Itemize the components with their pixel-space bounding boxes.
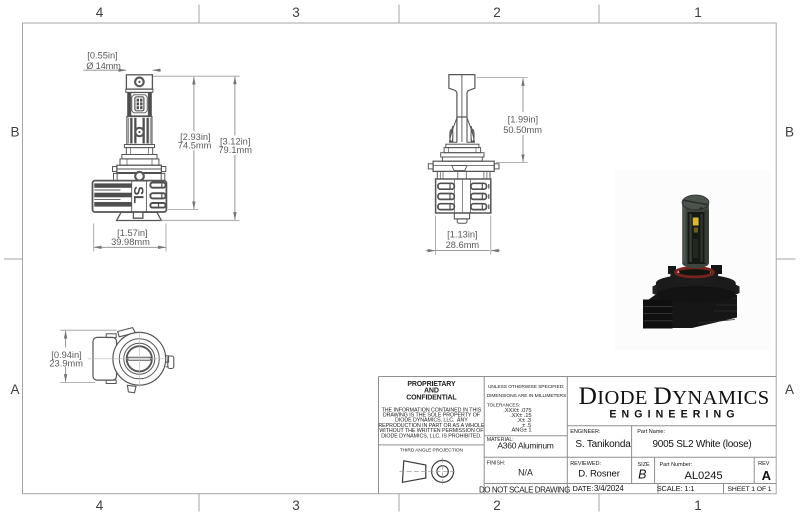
svg-text:39.98mm: 39.98mm <box>111 237 150 247</box>
svg-text:1: 1 <box>694 5 702 20</box>
svg-text:FINISH:: FINISH: <box>487 461 505 467</box>
svg-text:74.5mm: 74.5mm <box>178 141 212 151</box>
svg-text:B: B <box>638 468 646 482</box>
svg-text:50.50mm: 50.50mm <box>503 125 542 135</box>
svg-text:N/A: N/A <box>518 468 533 478</box>
svg-text:A: A <box>785 382 794 397</box>
svg-text:2: 2 <box>493 5 501 20</box>
svg-text:DIODE DYNAMICS: DIODE DYNAMICS <box>578 381 769 410</box>
svg-text:1: 1 <box>694 498 702 513</box>
svg-text:THIRD ANGLE PROJECTION: THIRD ANGLE PROJECTION <box>400 448 464 454</box>
svg-text:B: B <box>785 125 794 140</box>
svg-text:AL0245: AL0245 <box>685 470 723 482</box>
svg-text:A360 Aluminum: A360 Aluminum <box>497 441 553 451</box>
svg-text:DIMENSIONS ARE IN MILLIMETERS: DIMENSIONS ARE IN MILLIMETERS <box>487 393 567 399</box>
svg-text:SCALE: 1:1: SCALE: 1:1 <box>657 484 695 493</box>
svg-text:3: 3 <box>292 5 300 20</box>
svg-text:28.6mm: 28.6mm <box>446 240 480 250</box>
svg-text:2: 2 <box>493 498 501 513</box>
svg-text:CONFIDENTIAL: CONFIDENTIAL <box>406 394 457 401</box>
svg-text:3: 3 <box>292 498 300 513</box>
svg-text:A: A <box>10 382 19 397</box>
svg-text:Part Name:: Part Name: <box>637 429 665 435</box>
svg-text:9005 SL2 White (loose): 9005 SL2 White (loose) <box>652 439 751 450</box>
svg-text:REV: REV <box>758 461 770 467</box>
svg-text:DIODE DYNAMICS, LLC, IS PROHIB: DIODE DYNAMICS, LLC, IS PROHIBITED. <box>381 433 481 439</box>
svg-text:Part Number:: Part Number: <box>660 462 693 468</box>
svg-text:A: A <box>762 468 772 483</box>
svg-text:UNLESS OTHERWISE SPECIFIED:: UNLESS OTHERWISE SPECIFIED: <box>488 384 564 390</box>
svg-text:ENGINEER:: ENGINEER: <box>570 429 601 435</box>
svg-text:79.1mm: 79.1mm <box>218 145 252 155</box>
svg-text:Ø 14mm: Ø 14mm <box>86 61 121 71</box>
svg-text:B: B <box>10 125 19 140</box>
svg-text:[0.55in]: [0.55in] <box>87 51 118 61</box>
svg-text:SHEET 1 OF 1: SHEET 1 OF 1 <box>727 486 771 493</box>
svg-text:3/4/2024: 3/4/2024 <box>594 484 624 493</box>
svg-text:[1.99in]: [1.99in] <box>508 114 539 124</box>
svg-text:ANG± 1: ANG± 1 <box>512 428 532 434</box>
svg-text:DATE:: DATE: <box>573 484 594 493</box>
svg-text:REVIEWED:: REVIEWED: <box>570 461 601 467</box>
svg-text:4: 4 <box>96 498 104 513</box>
svg-text:D. Rosner: D. Rosner <box>578 469 620 480</box>
svg-text:SL: SL <box>131 186 146 203</box>
svg-text:DO NOT SCALE DRAWING: DO NOT SCALE DRAWING <box>479 486 570 495</box>
svg-text:S. Tanikonda: S. Tanikonda <box>575 439 631 450</box>
svg-text:[1.13in]: [1.13in] <box>447 230 478 240</box>
svg-text:4: 4 <box>96 5 104 20</box>
svg-text:ENGINEERING: ENGINEERING <box>609 408 739 420</box>
svg-text:23.9mm: 23.9mm <box>49 358 83 368</box>
